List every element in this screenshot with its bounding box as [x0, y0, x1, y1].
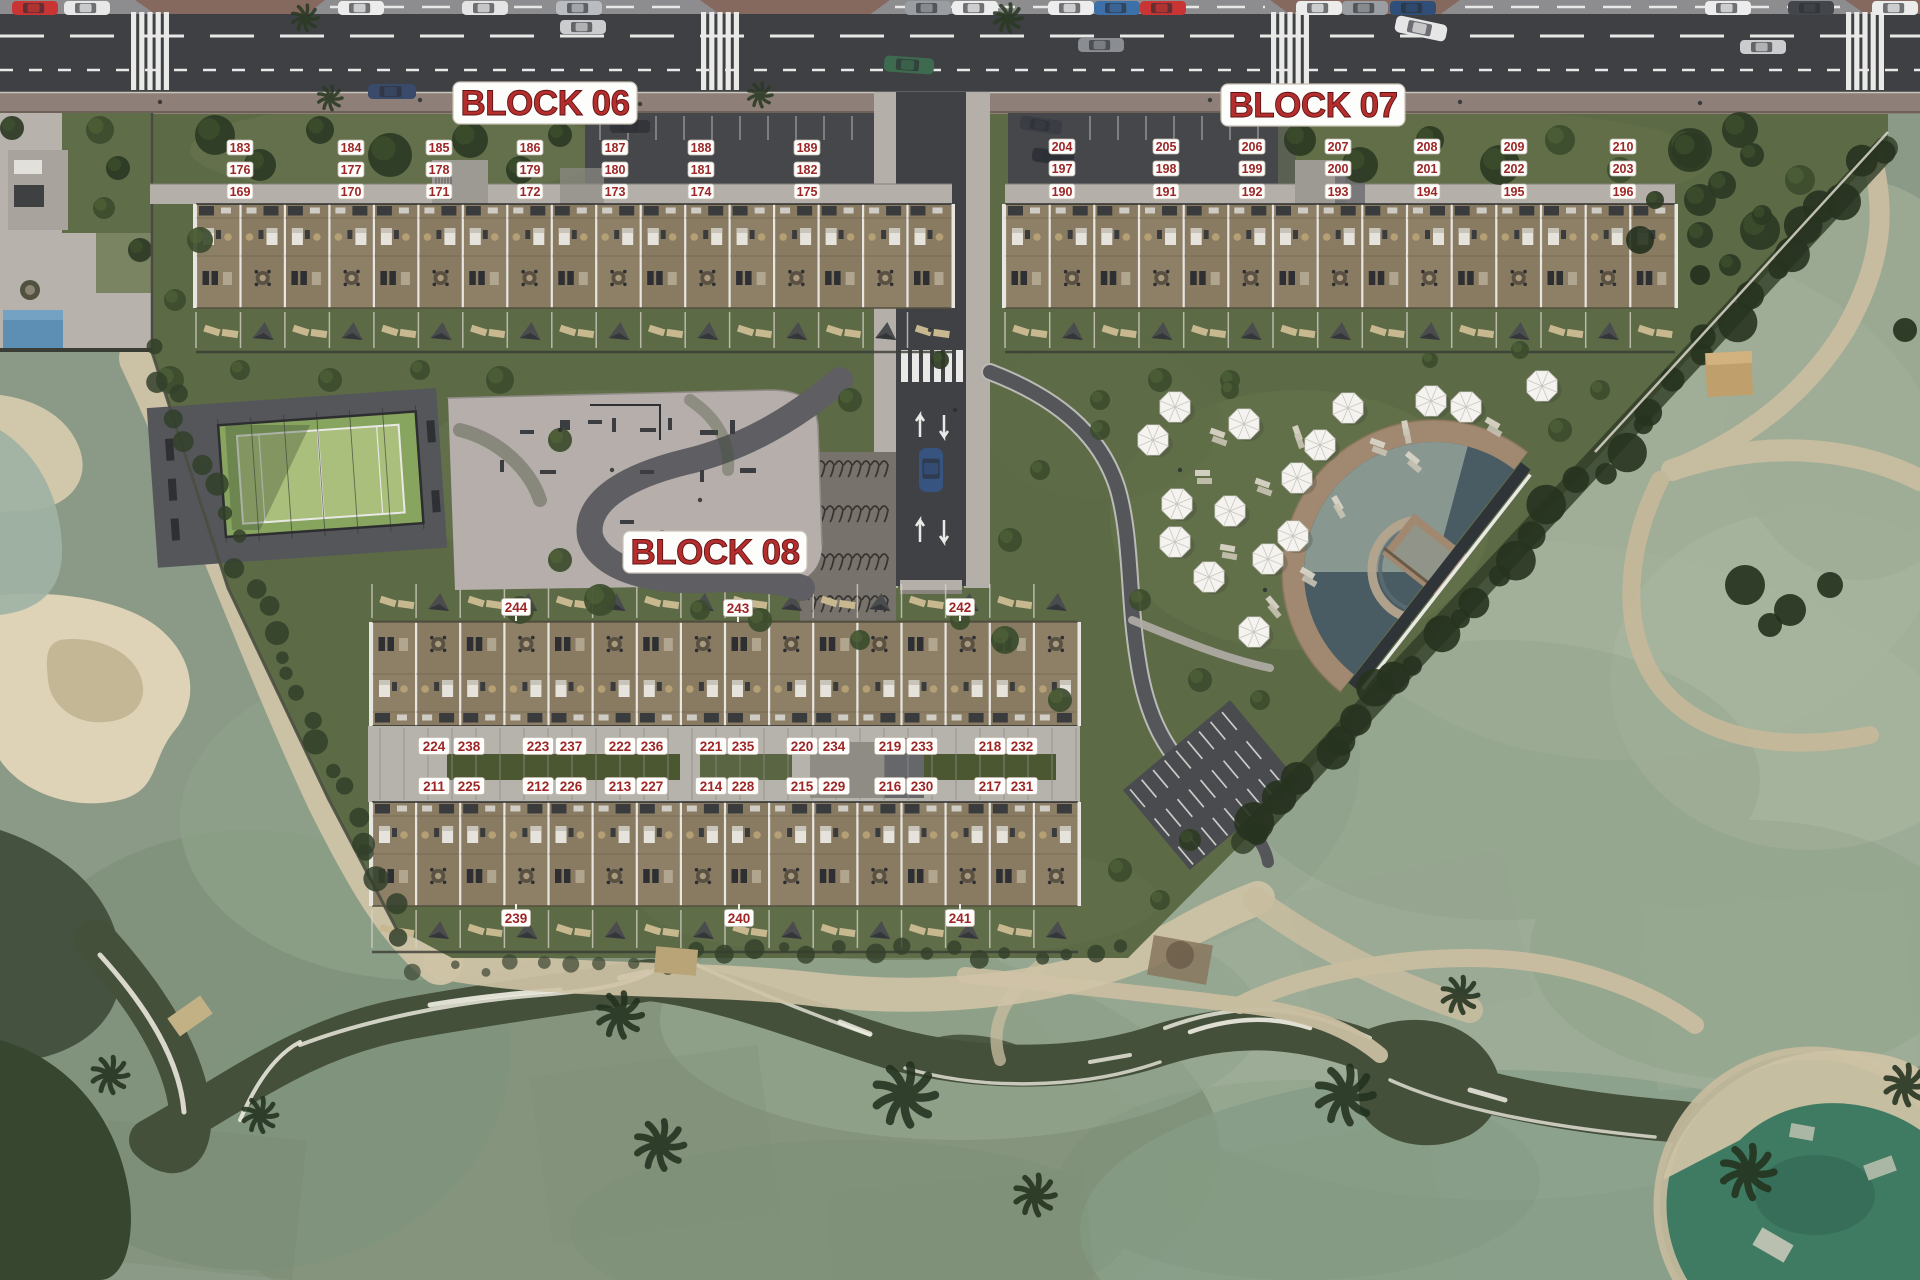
svg-text:217: 217 — [979, 779, 1002, 794]
svg-text:189: 189 — [797, 141, 818, 155]
svg-text:237: 237 — [560, 739, 583, 754]
svg-text:233: 233 — [911, 739, 934, 754]
svg-text:179: 179 — [520, 163, 541, 177]
svg-text:242: 242 — [949, 600, 972, 615]
svg-text:191: 191 — [1156, 185, 1177, 199]
svg-text:229: 229 — [823, 779, 846, 794]
svg-text:178: 178 — [429, 163, 450, 177]
svg-text:BLOCK 06: BLOCK 06 — [460, 84, 629, 123]
svg-text:206: 206 — [1242, 140, 1263, 154]
svg-text:224: 224 — [423, 739, 446, 754]
svg-text:194: 194 — [1417, 185, 1438, 199]
svg-text:243: 243 — [727, 601, 750, 616]
svg-text:226: 226 — [560, 779, 583, 794]
svg-text:225: 225 — [458, 779, 481, 794]
svg-text:196: 196 — [1613, 185, 1634, 199]
svg-text:240: 240 — [728, 911, 751, 926]
svg-text:223: 223 — [527, 739, 550, 754]
svg-text:199: 199 — [1242, 162, 1263, 176]
svg-text:169: 169 — [230, 185, 251, 199]
svg-text:174: 174 — [691, 185, 712, 199]
svg-text:236: 236 — [641, 739, 664, 754]
svg-text:183: 183 — [230, 141, 251, 155]
svg-text:204: 204 — [1052, 140, 1073, 154]
svg-text:200: 200 — [1328, 162, 1349, 176]
svg-text:BLOCK 08: BLOCK 08 — [630, 533, 799, 572]
svg-text:221: 221 — [700, 739, 723, 754]
svg-text:215: 215 — [791, 779, 814, 794]
svg-text:172: 172 — [520, 185, 541, 199]
svg-text:234: 234 — [823, 739, 846, 754]
svg-text:238: 238 — [458, 739, 481, 754]
svg-text:190: 190 — [1052, 185, 1073, 199]
svg-text:173: 173 — [605, 185, 626, 199]
svg-text:188: 188 — [691, 141, 712, 155]
svg-text:207: 207 — [1328, 140, 1349, 154]
svg-text:220: 220 — [791, 739, 814, 754]
svg-text:228: 228 — [732, 779, 755, 794]
svg-text:241: 241 — [949, 911, 972, 926]
svg-text:212: 212 — [527, 779, 550, 794]
svg-text:201: 201 — [1417, 162, 1438, 176]
svg-text:218: 218 — [979, 739, 1002, 754]
svg-text:230: 230 — [911, 779, 934, 794]
svg-text:175: 175 — [797, 185, 818, 199]
svg-text:182: 182 — [797, 163, 818, 177]
svg-text:231: 231 — [1011, 779, 1034, 794]
svg-text:187: 187 — [605, 141, 626, 155]
svg-text:210: 210 — [1613, 140, 1634, 154]
svg-text:BLOCK 07: BLOCK 07 — [1228, 86, 1397, 125]
svg-text:203: 203 — [1613, 162, 1634, 176]
svg-text:219: 219 — [879, 739, 902, 754]
svg-text:239: 239 — [505, 911, 528, 926]
svg-text:195: 195 — [1504, 185, 1525, 199]
svg-text:222: 222 — [609, 739, 632, 754]
svg-text:185: 185 — [429, 141, 450, 155]
svg-text:198: 198 — [1156, 162, 1177, 176]
svg-text:192: 192 — [1242, 185, 1263, 199]
svg-text:208: 208 — [1417, 140, 1438, 154]
svg-text:213: 213 — [609, 779, 632, 794]
svg-text:193: 193 — [1328, 185, 1349, 199]
svg-text:186: 186 — [520, 141, 541, 155]
svg-text:205: 205 — [1156, 140, 1177, 154]
svg-text:211: 211 — [423, 779, 445, 794]
svg-text:214: 214 — [700, 779, 723, 794]
svg-text:216: 216 — [879, 779, 902, 794]
svg-text:176: 176 — [230, 163, 251, 177]
svg-text:180: 180 — [605, 163, 626, 177]
svg-text:209: 209 — [1504, 140, 1525, 154]
svg-text:244: 244 — [505, 600, 528, 615]
svg-text:170: 170 — [341, 185, 362, 199]
svg-text:171: 171 — [429, 185, 450, 199]
svg-text:177: 177 — [341, 163, 362, 177]
svg-text:227: 227 — [641, 779, 664, 794]
svg-text:232: 232 — [1011, 739, 1034, 754]
svg-text:202: 202 — [1504, 162, 1525, 176]
svg-text:184: 184 — [341, 141, 362, 155]
svg-text:181: 181 — [691, 163, 712, 177]
svg-text:197: 197 — [1052, 162, 1073, 176]
svg-text:235: 235 — [732, 739, 755, 754]
